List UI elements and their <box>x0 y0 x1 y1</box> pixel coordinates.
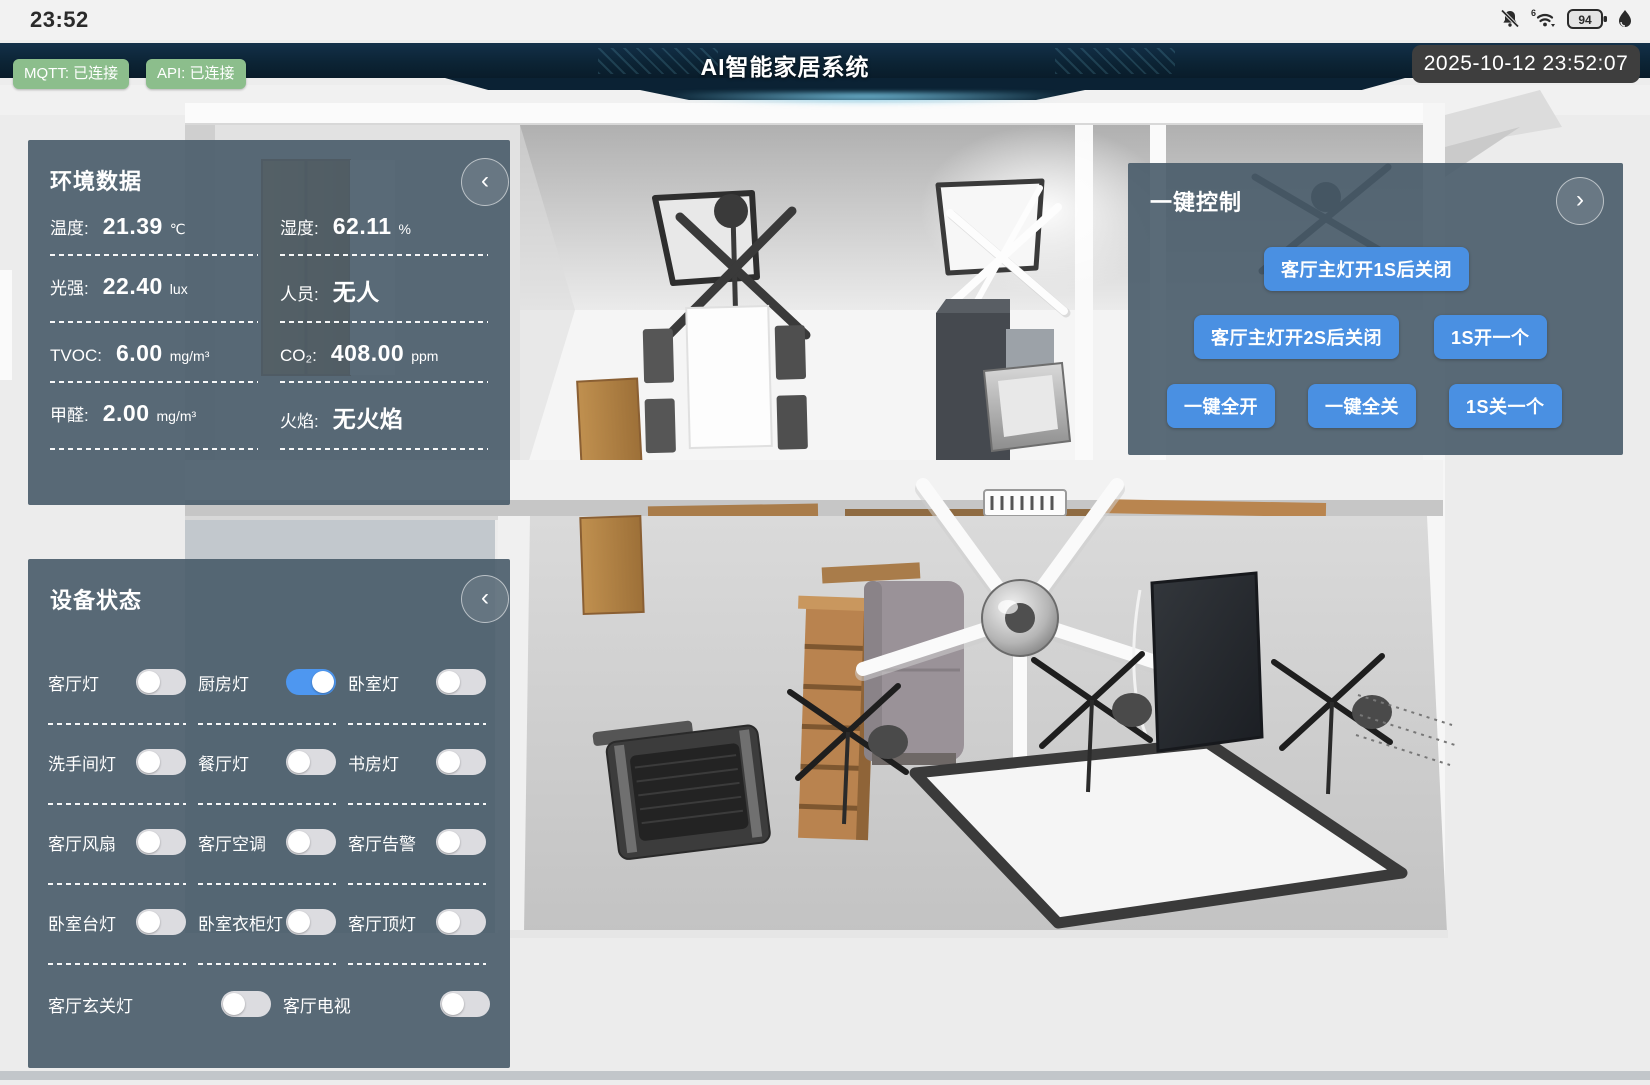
toggle-knob <box>223 993 245 1015</box>
datetime-display: 2025-10-12 23:52:07 <box>1412 45 1640 83</box>
btn-main-light-off-after-1s[interactable]: 客厅主灯开1S后关闭 <box>1264 247 1469 291</box>
divider <box>48 963 186 965</box>
control-panel-title: 一键控制 <box>1128 163 1623 217</box>
toggle-bedroom-wardrobe-light[interactable] <box>286 909 336 935</box>
divider <box>198 963 336 965</box>
btn-all-off[interactable]: 一键全关 <box>1308 384 1416 428</box>
divider <box>280 321 488 323</box>
circuit-pattern-right <box>1055 48 1175 74</box>
toggle-dining-light[interactable] <box>286 749 336 775</box>
device-living-room-light: 客厅灯 <box>48 669 186 695</box>
env-metric-formaldehyde: 甲醛: 2.00 mg/m³ <box>50 400 258 434</box>
toggle-knob <box>138 671 160 693</box>
device-bedroom-desk-lamp: 卧室台灯 <box>48 909 186 935</box>
environment-data-panel: 环境数据 ‹ 温度: 21.39 ℃ 湿度: 62.11 % 光强: 22.40… <box>28 140 510 505</box>
bell-muted-icon <box>1499 8 1521 30</box>
device-living-room-tv: 客厅电视 <box>283 991 490 1017</box>
toggle-living-room-ceiling-light[interactable] <box>436 909 486 935</box>
power-save-icon <box>1618 9 1632 29</box>
expand-control-panel-button[interactable]: › <box>1556 177 1604 225</box>
toggle-knob <box>138 911 160 933</box>
chevron-left-icon: ‹ <box>481 167 489 194</box>
btn-main-light-off-after-2s[interactable]: 客厅主灯开2S后关闭 <box>1194 315 1399 359</box>
toggle-living-room-alarm[interactable] <box>436 829 486 855</box>
wifi-icon: 6 <box>1530 8 1558 30</box>
divider <box>348 803 486 805</box>
device-status-panel: 设备状态 ‹ 客厅灯 厨房灯 卧室灯 洗手间灯 餐厅灯 书房灯 <box>28 559 510 1068</box>
device-living-room-ceiling-light: 客厅顶灯 <box>348 909 486 935</box>
divider <box>198 883 336 885</box>
svg-text:94: 94 <box>1578 13 1592 27</box>
chevron-right-icon: › <box>1576 186 1584 213</box>
svg-text:6: 6 <box>1531 8 1536 18</box>
toggle-bedroom-desk-lamp[interactable] <box>136 909 186 935</box>
collapse-env-panel-button[interactable]: ‹ <box>461 158 509 206</box>
btn-close-one-per-1s[interactable]: 1S关一个 <box>1449 384 1562 428</box>
device-study-light: 书房灯 <box>348 749 486 775</box>
toggle-living-room-fan[interactable] <box>136 829 186 855</box>
clock-text: 23:52 <box>30 7 89 33</box>
toggle-bedroom-light[interactable] <box>436 669 486 695</box>
divider <box>50 381 258 383</box>
divider <box>48 803 186 805</box>
env-metric-humidity: 湿度: 62.11 % <box>280 213 488 240</box>
toggle-living-room-tv[interactable] <box>440 991 490 1017</box>
toggle-study-light[interactable] <box>436 749 486 775</box>
device-panel-title: 设备状态 <box>28 559 510 615</box>
toggle-knob <box>288 831 310 853</box>
api-status-badge: API: 已连接 <box>146 59 246 89</box>
toggle-knob <box>438 911 460 933</box>
mqtt-status-badge: MQTT: 已连接 <box>13 59 129 89</box>
toggle-living-room-entry-light[interactable] <box>221 991 271 1017</box>
env-metric-flame: 火焰: 无火焰 <box>280 400 488 434</box>
toggle-knob <box>442 993 464 1015</box>
env-panel-title: 环境数据 <box>28 140 510 196</box>
divider <box>50 448 258 450</box>
divider <box>48 723 186 725</box>
divider <box>198 723 336 725</box>
toggle-knob <box>438 751 460 773</box>
toggle-living-room-ac[interactable] <box>286 829 336 855</box>
circuit-pattern-left <box>598 48 718 74</box>
battery-icon: 94 <box>1567 8 1609 30</box>
device-bathroom-light: 洗手间灯 <box>48 749 186 775</box>
toggle-knob <box>312 671 334 693</box>
divider <box>348 963 486 965</box>
env-metric-light: 光强: 22.40 lux <box>50 273 258 307</box>
divider <box>280 254 488 256</box>
device-bedroom-wardrobe-light: 卧室衣柜灯 <box>198 909 336 935</box>
divider <box>198 803 336 805</box>
toggle-bathroom-light[interactable] <box>136 749 186 775</box>
device-living-room-fan: 客厅风扇 <box>48 829 186 855</box>
collapse-device-panel-button[interactable]: ‹ <box>461 575 509 623</box>
divider <box>348 883 486 885</box>
divider <box>280 448 488 450</box>
chevron-left-icon: ‹ <box>481 584 489 611</box>
btn-all-on[interactable]: 一键全开 <box>1167 384 1275 428</box>
toggle-knob <box>138 751 160 773</box>
env-metric-tvoc: TVOC: 6.00 mg/m³ <box>50 340 258 367</box>
one-key-control-panel: 一键控制 › 客厅主灯开1S后关闭 客厅主灯开2S后关闭 1S开一个 一键全开 … <box>1128 163 1623 455</box>
toggle-knob <box>438 671 460 693</box>
env-metric-temperature: 温度: 21.39 ℃ <box>50 213 258 240</box>
divider <box>50 321 258 323</box>
toggle-knob <box>438 831 460 853</box>
env-metric-occupancy: 人员: 无人 <box>280 273 488 307</box>
env-metric-co2: CO₂: 408.00 ppm <box>280 340 488 367</box>
divider <box>280 381 488 383</box>
divider <box>48 883 186 885</box>
android-status-bar: 23:52 6 94 <box>0 0 1650 40</box>
divider <box>348 723 486 725</box>
header-bar <box>0 43 1650 78</box>
device-bedroom-light: 卧室灯 <box>348 669 486 695</box>
device-dining-light: 餐厅灯 <box>198 749 336 775</box>
toggle-kitchen-light[interactable] <box>286 669 336 695</box>
device-living-room-entry-light: 客厅玄关灯 <box>48 991 271 1017</box>
toggle-knob <box>288 911 310 933</box>
divider <box>50 254 258 256</box>
toggle-living-room-light[interactable] <box>136 669 186 695</box>
btn-open-one-per-1s[interactable]: 1S开一个 <box>1434 315 1547 359</box>
device-living-room-alarm: 客厅告警 <box>348 829 486 855</box>
toggle-knob <box>138 831 160 853</box>
device-living-room-ac: 客厅空调 <box>198 829 336 855</box>
device-kitchen-light: 厨房灯 <box>198 669 336 695</box>
toggle-knob <box>288 751 310 773</box>
